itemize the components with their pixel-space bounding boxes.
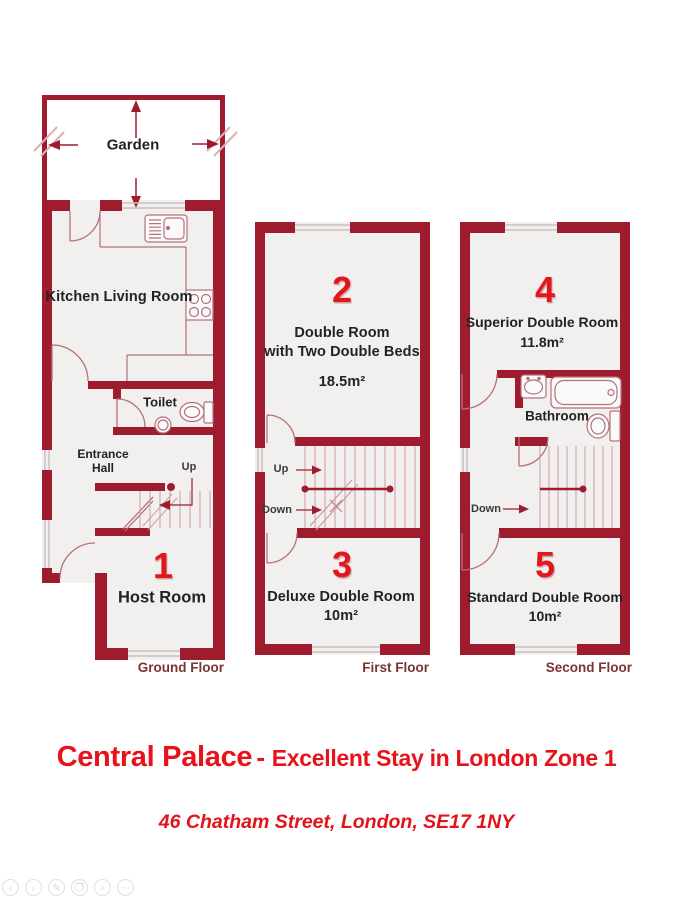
room3-area: 10m² (324, 608, 358, 624)
zoom-icon[interactable]: ⌕ (94, 879, 111, 896)
room1-number: 1 (153, 545, 173, 587)
property-name: Central Palace (57, 741, 253, 773)
title-separator: - (256, 742, 271, 772)
wc-bowl (180, 403, 204, 422)
room2-number: 2 (332, 269, 352, 311)
garden-label: Garden (107, 137, 160, 154)
toilet-label: Toilet (143, 395, 177, 410)
ground-floor-label: Ground Floor (138, 660, 224, 675)
room5-number: 5 (535, 544, 555, 586)
room1-name: Host Room (118, 589, 206, 608)
bathtub (551, 377, 621, 408)
page-title: Central Palace - Excellent Stay in Londo… (57, 741, 617, 774)
kitchen-label: Kitchen Living Room (46, 289, 193, 305)
title-tagline: Excellent Stay in London Zone 1 (272, 745, 617, 771)
garden-arrowheads (48, 100, 219, 208)
room4-name: Superior Double Room (466, 314, 618, 330)
first-up-label: Up (274, 463, 289, 475)
property-address: 46 Chatham Street, London, SE17 1NY (159, 811, 514, 834)
entrance-hall-label-line1: Entrance (77, 447, 128, 461)
back-icon[interactable]: ‹ (2, 879, 19, 896)
room2-area: 18.5m² (319, 374, 366, 390)
hand-basin (155, 417, 171, 433)
room2-name-line1: Double Room (294, 325, 389, 341)
first-down-label: Down (262, 504, 292, 516)
garden-arrows (58, 110, 210, 198)
first-floor-label: First Floor (362, 660, 429, 675)
copy-icon[interactable]: ❐ (71, 879, 88, 896)
room5-area: 10m² (529, 608, 562, 624)
second-down-label: Down (471, 503, 501, 515)
room3-name: Deluxe Double Room (267, 589, 415, 605)
entrance-hall-label-line2: Hall (92, 461, 114, 475)
room4-number: 4 (535, 269, 555, 311)
room2-name-line2: with Two Double Beds (264, 344, 420, 360)
bathroom-label: Bathroom (525, 409, 589, 424)
room3-number: 3 (332, 544, 352, 586)
room4-area: 11.8m² (520, 334, 564, 350)
floorplan-page: Garden Kitchen Living Room Toilet Entran… (0, 0, 673, 900)
wc-cistern (204, 402, 213, 423)
more-icon[interactable]: ⋯ (117, 879, 134, 896)
viewer-toolbar: ‹ › ✎ ❐ ⌕ ⋯ (2, 879, 134, 896)
wc-cistern (610, 411, 620, 441)
second-floor-label: Second Floor (546, 660, 632, 675)
forward-icon[interactable]: › (25, 879, 42, 896)
edit-icon[interactable]: ✎ (48, 879, 65, 896)
room5-name: Standard Double Room (467, 589, 623, 605)
ground-floor-plan (34, 95, 237, 660)
ground-up-label: Up (182, 461, 197, 473)
